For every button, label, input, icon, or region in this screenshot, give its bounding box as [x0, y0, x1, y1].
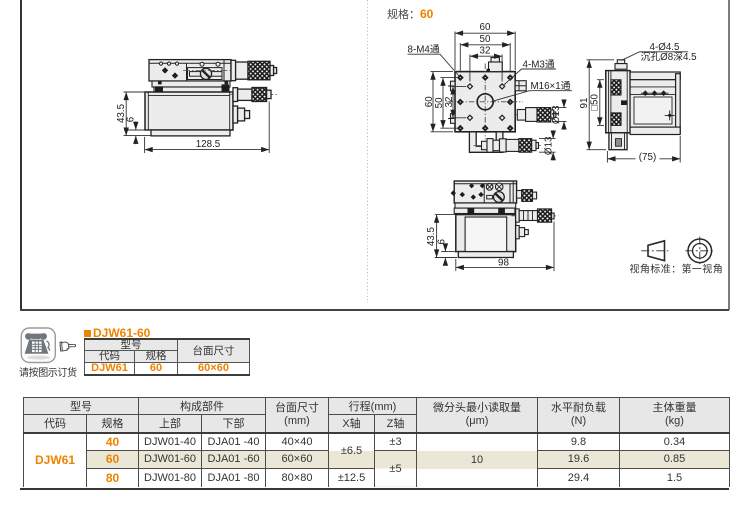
svg-text:(75): (75)	[639, 152, 656, 163]
svg-text:M16×1通: M16×1通	[531, 80, 571, 92]
svg-text:60: 60	[480, 22, 491, 33]
svg-text:沉孔Ø8深4.5: 沉孔Ø8深4.5	[641, 50, 698, 63]
svg-text:8-M4通: 8-M4通	[408, 44, 440, 56]
svg-text:6: 6	[436, 239, 447, 245]
svg-text:32: 32	[444, 97, 455, 108]
svg-text:6: 6	[125, 116, 136, 122]
svg-text:50: 50	[480, 34, 491, 45]
svg-text:Ø13: Ø13	[543, 136, 554, 155]
svg-text:128.5: 128.5	[196, 139, 221, 150]
svg-text:视角标准：第一视角: 视角标准：第一视角	[630, 262, 724, 275]
svg-text:□50: □50	[589, 94, 600, 111]
svg-text:91: 91	[579, 98, 590, 109]
svg-text:98: 98	[498, 258, 509, 269]
svg-text:32: 32	[480, 45, 491, 56]
svg-text:Ø13: Ø13	[551, 105, 562, 124]
svg-text:4-M3通: 4-M3通	[523, 58, 555, 70]
